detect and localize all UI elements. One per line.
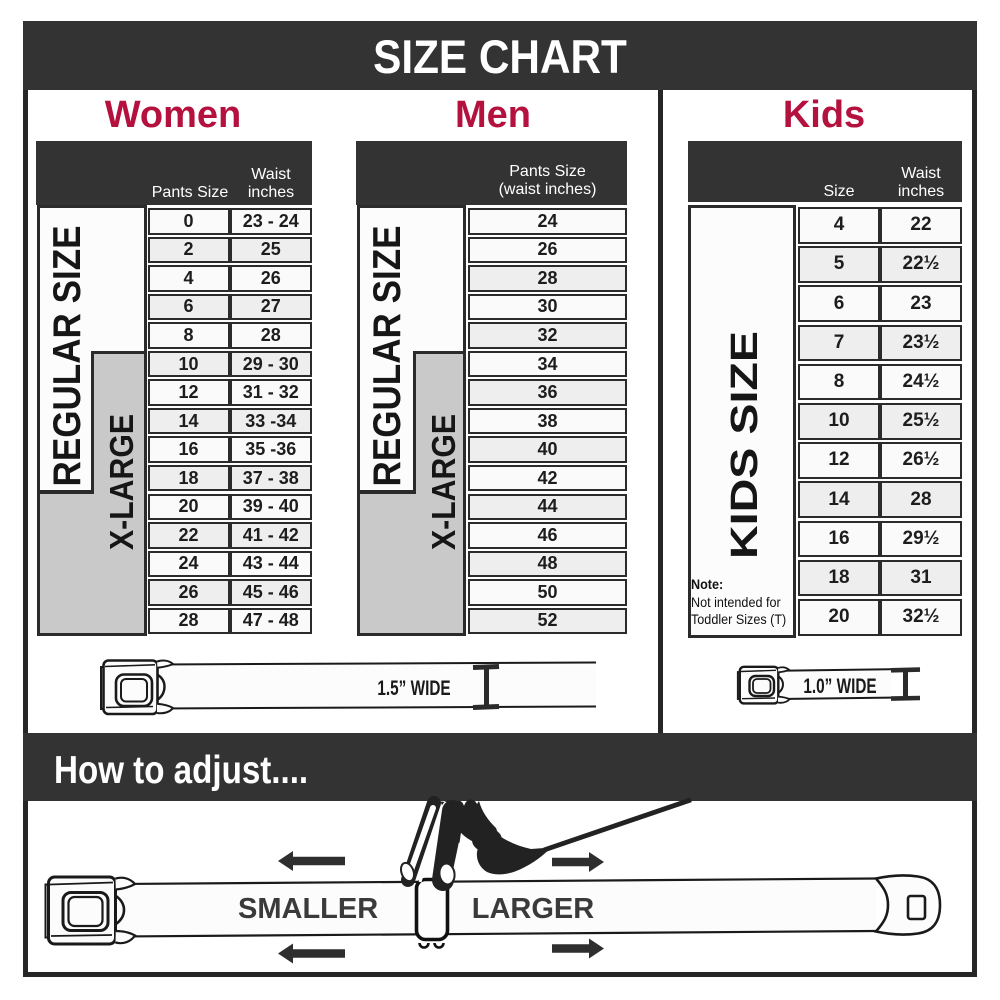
svg-text:X-LARGE: X-LARGE — [425, 414, 462, 550]
svg-text:REGULAR SIZE: REGULAR SIZE — [366, 226, 409, 487]
svg-text:REGULAR SIZE: REGULAR SIZE — [46, 226, 89, 487]
svg-text:KIDS SIZE: KIDS SIZE — [724, 331, 766, 559]
svg-text:X-LARGE: X-LARGE — [103, 414, 140, 550]
